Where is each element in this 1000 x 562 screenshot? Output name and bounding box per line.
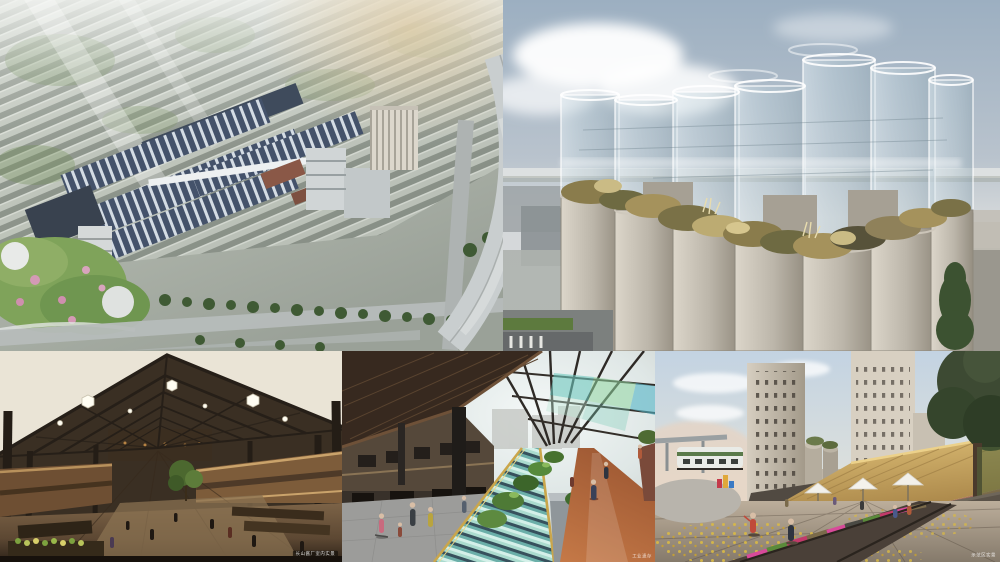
foreground-shadow [0, 556, 342, 562]
caption-canal-street: 工业遗存 [632, 554, 652, 559]
caption-market-hall: 长山酱厂室内实景 [293, 551, 338, 558]
panel-aerial-masterplan [0, 0, 503, 351]
market-hall-render [0, 351, 342, 562]
panel-silo-towers [503, 0, 1000, 351]
street-corner [503, 310, 613, 351]
canal-promenade-render [342, 351, 655, 562]
rail-plaza-render [655, 351, 1000, 562]
panel-canal-promenade: 工业遗存 [342, 351, 655, 562]
aerial-masterplan-render [0, 0, 503, 351]
silo-towers-render [503, 0, 1000, 351]
panel-market-hall-interior: 长山酱厂室内实景 [0, 351, 342, 562]
caption-plaza-scene: 示范区实景 [971, 553, 996, 558]
silo-landmark-building [370, 106, 418, 170]
render-collage: 长山酱厂室内实景 [0, 0, 1000, 562]
panel-rail-plaza: 示范区实景 [655, 351, 1000, 562]
glass-horizon-reflection [561, 158, 961, 168]
